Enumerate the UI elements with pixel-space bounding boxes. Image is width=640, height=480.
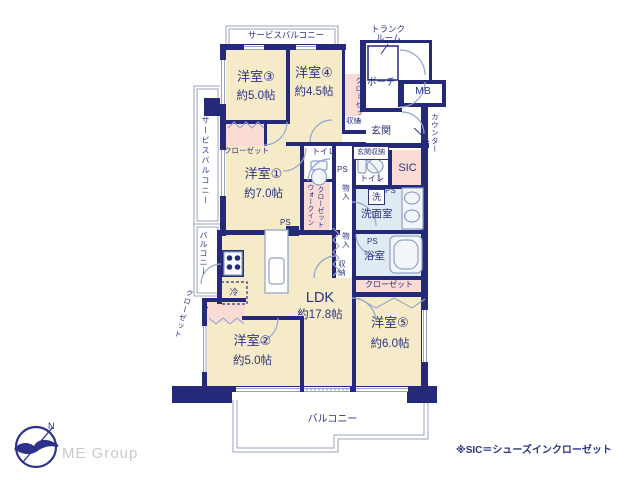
label-entrance: 玄関 [371, 126, 391, 137]
label-counter: カウンター [430, 113, 438, 153]
label-sic: SIC [391, 162, 424, 174]
label-service-balcony-top: サービスバルコニー [230, 31, 342, 41]
label-bathroom: 浴室 [364, 251, 385, 263]
label-service-balcony-left: サービスバルコニー [200, 116, 209, 206]
bird-icon [14, 440, 58, 454]
label-ps-washroom: PS [385, 187, 396, 196]
label-toilet-center: トイレ [312, 148, 336, 157]
sink-icon [405, 210, 420, 222]
label-ps-bath: PS [367, 238, 378, 247]
room-label-yoshitsu4: 洋室④ [288, 66, 340, 81]
label-trunk-room-line2: ルーム [376, 34, 401, 44]
room-size-yoshitsu2: 約5.0帖 [205, 355, 300, 368]
room-label-yoshitsu2: 洋室② [205, 334, 300, 349]
room-size-ldk: 約17.8帖 [280, 309, 360, 322]
label-fridge: 冷 [221, 288, 247, 298]
label-closet-y5: クローゼット [352, 281, 426, 290]
logo-n-letter: N [48, 421, 55, 431]
label-wic-line1: ウォークイン [306, 184, 314, 226]
label-monoire-upper: 物入 [341, 184, 349, 201]
label-shuno-ldk: 収納 [337, 260, 345, 277]
label-ps-hall: PS [337, 166, 348, 175]
label-closet-y4: クローゼット [344, 77, 363, 104]
label-mb: MB [404, 86, 442, 98]
toilet-right-bowl-icon [367, 159, 383, 173]
logo-text: ME Group [62, 446, 138, 463]
label-monoire-lower: 物入 [341, 232, 349, 249]
label-porch: ポーチ [367, 78, 396, 89]
room-label-yoshitsu3: 洋室③ [226, 70, 286, 85]
stove-icon [224, 252, 242, 275]
sink-icon [405, 192, 420, 204]
label-balcony-bottom: バルコニー [290, 414, 375, 425]
me-group-logo [14, 427, 58, 467]
label-entrance-storage: 玄関収納 [353, 146, 389, 160]
room-size-yoshitsu3: 約5.0帖 [226, 90, 286, 103]
label-ps-yoshitsu1: PS [280, 219, 291, 228]
label-balcony-left: バルコニー [198, 231, 207, 276]
bathtub-icon [390, 236, 422, 273]
label-wic-line2: クローゼット [316, 186, 324, 228]
floor-plan: サービスバルコニー トランク ルーム ポーチ MB 玄関 カウンター 玄関収納 … [0, 0, 640, 480]
room-label-yoshitsu5: 洋室⑤ [356, 316, 424, 331]
toilet-center-bowl-icon [312, 169, 327, 185]
label-closet-y1: クローゼット [224, 147, 269, 155]
toilet-right-tank-icon [358, 158, 366, 173]
room-label-yoshitsu1: 洋室① [226, 167, 301, 182]
label-shuno-top: 収納 [343, 117, 364, 125]
label-washroom: 洗面室 [361, 209, 393, 221]
room-size-yoshitsu1: 約7.0帖 [226, 188, 301, 201]
sic-footnote: ※SIC＝シューズインクローゼット [456, 445, 612, 456]
room-size-yoshitsu4: 約4.5帖 [288, 86, 340, 99]
room-size-yoshitsu5: 約6.0帖 [356, 338, 424, 351]
label-toilet-right: トイレ [360, 175, 384, 184]
label-washer: 洗 [368, 189, 385, 205]
room-label-ldk: LDK [280, 290, 360, 306]
